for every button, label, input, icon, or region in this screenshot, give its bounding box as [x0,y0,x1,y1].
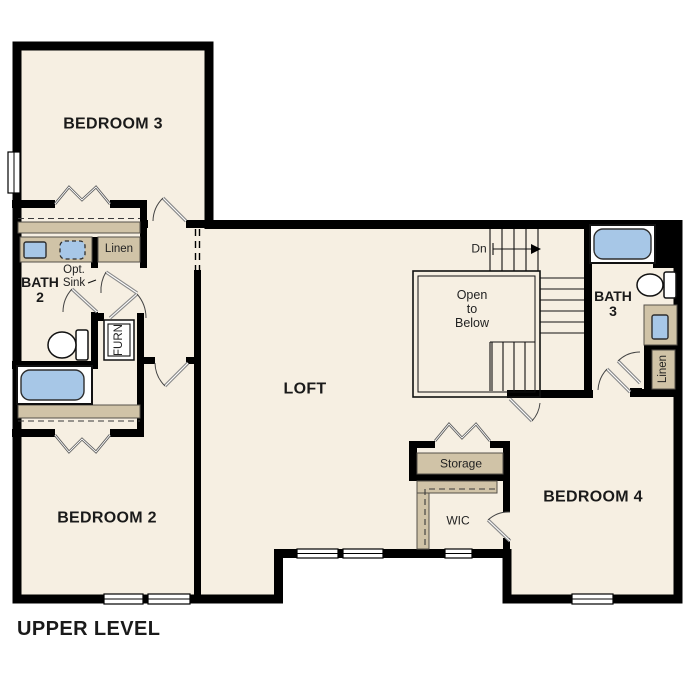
bathtub-icon-bath3 [590,225,655,263]
bedroom3-label: BEDROOM 3 [63,115,163,132]
toilet-icon-bath2 [48,330,88,360]
wic-label: WIC [446,515,469,528]
open-to-below-label: Open to Below [455,288,489,330]
optional-sink-label: Opt. Sink [63,264,85,290]
window-bedroom3-left [8,152,20,193]
optional-sink-line2: Sink [63,277,85,290]
page-title: UPPER LEVEL [17,618,160,641]
window-bedroom4 [572,594,613,604]
storage-label: Storage [440,458,482,471]
bath3-label-line2: 3 [594,304,632,319]
open-to-below-line2: to [455,302,489,316]
sink-icon-bath3 [652,315,668,339]
window-loft-a [297,549,338,558]
bedroom4-label: BEDROOM 4 [543,488,643,505]
window-loft-b [343,549,383,558]
linen-label-bath3: Linen [657,355,669,383]
optional-sink-line1: Opt. [63,264,85,277]
stair-down-label: Dn [471,243,486,256]
bath2-label-line1: BATH [21,275,59,290]
open-to-below-line3: Below [455,316,489,330]
linen-label-bath2: Linen [105,243,133,255]
bath2-label: BATH 2 [21,275,59,305]
bath3-label-line1: BATH [594,289,632,304]
loft-label: LOFT [284,380,327,397]
optional-sink-icon-bath2 [60,241,85,259]
window-wic-wall [445,549,472,558]
bath3-label: BATH 3 [594,289,632,319]
sink-icon-bath2 [24,242,46,258]
window-bedroom2-b [148,594,190,604]
bath2-label-line2: 2 [21,290,59,305]
floor-plan-drawing [0,0,687,687]
bathtub-icon-bath2 [17,366,92,404]
open-to-below-line1: Open [455,288,489,302]
toilet-icon-bath3 [637,272,676,298]
floor-plan: BEDROOM 3 BEDROOM 2 BEDROOM 4 LOFT BATH … [0,0,687,687]
bedroom2-label: BEDROOM 2 [57,509,157,526]
window-bedroom2-a [104,594,143,604]
furnace-label: FURN [113,324,125,356]
